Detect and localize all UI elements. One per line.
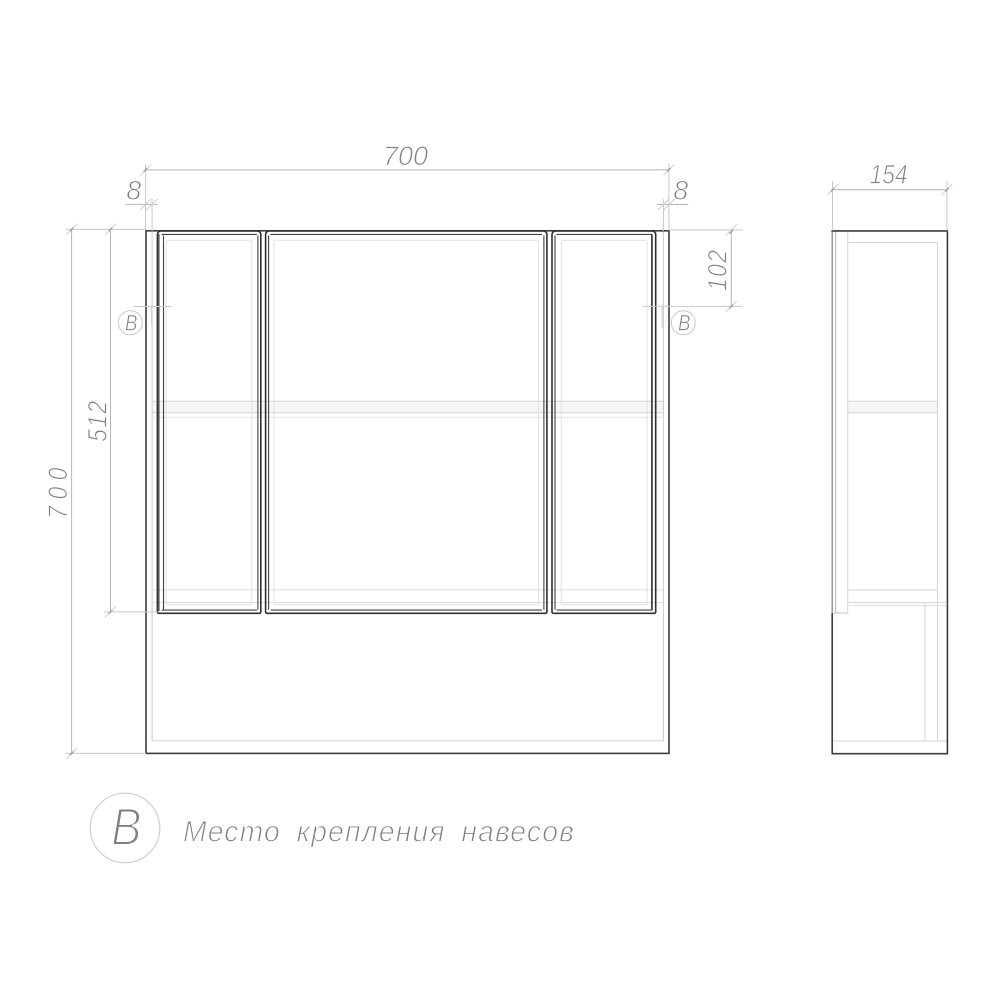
svg-text:8: 8 [126, 176, 141, 206]
svg-text:154: 154 [870, 160, 908, 190]
svg-text:Место крепления навесов: Место крепления навесов [183, 816, 575, 849]
svg-text:700: 700 [43, 461, 73, 518]
svg-text:700: 700 [383, 141, 428, 171]
svg-text:B: B [678, 312, 690, 336]
svg-text:B: B [125, 312, 137, 336]
svg-text:8: 8 [673, 176, 688, 206]
svg-text:102: 102 [703, 249, 733, 291]
svg-text:512: 512 [83, 400, 113, 442]
svg-text:B: B [111, 798, 141, 857]
